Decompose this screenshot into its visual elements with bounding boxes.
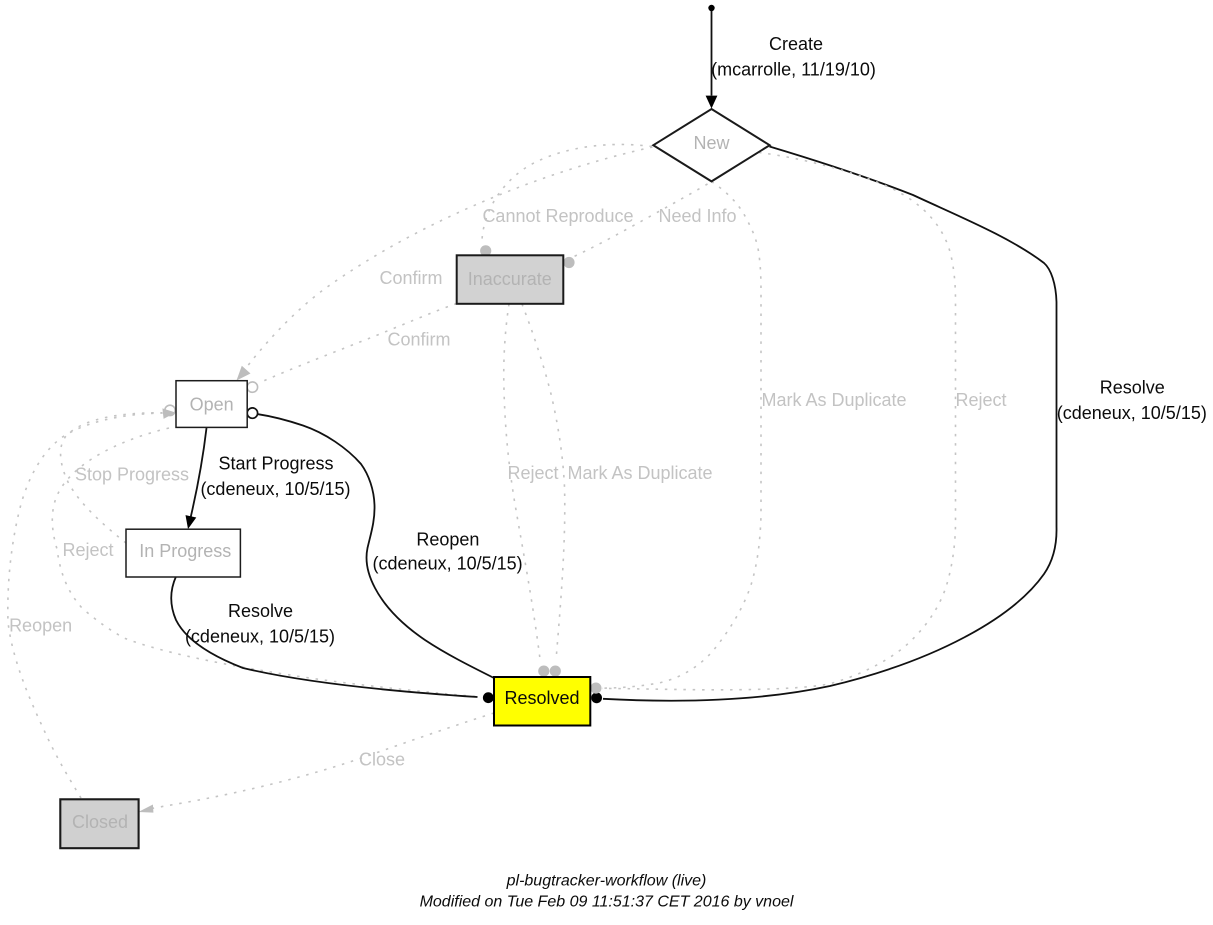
svg-text:Confirm: Confirm — [387, 330, 450, 350]
svg-text:(cdeneux, 10/5/15): (cdeneux, 10/5/15) — [1057, 403, 1207, 423]
svg-text:(cdeneux, 10/5/15): (cdeneux, 10/5/15) — [373, 553, 523, 573]
svg-text:pl-bugtracker-workflow (live): pl-bugtracker-workflow (live) — [506, 872, 707, 889]
svg-text:Reject: Reject — [955, 390, 1006, 410]
svg-text:Closed: Closed — [72, 812, 128, 832]
svg-text:(mcarrolle, 11/19/10): (mcarrolle, 11/19/10) — [711, 60, 876, 80]
svg-text:Resolve: Resolve — [1100, 377, 1165, 397]
svg-text:Reject: Reject — [62, 540, 113, 560]
svg-text:Close: Close — [359, 749, 405, 769]
svg-text:Resolved: Resolved — [504, 688, 579, 708]
svg-text:(cdeneux, 10/5/15): (cdeneux, 10/5/15) — [185, 627, 335, 647]
svg-text:Open: Open — [190, 394, 234, 414]
svg-text:Start Progress: Start Progress — [218, 454, 333, 474]
svg-text:Mark As Duplicate: Mark As Duplicate — [567, 463, 712, 483]
svg-text:Mark As Duplicate: Mark As Duplicate — [761, 390, 906, 410]
svg-text:(cdeneux, 10/5/15): (cdeneux, 10/5/15) — [200, 479, 350, 499]
svg-text:Cannot Reproduce: Cannot Reproduce — [482, 206, 633, 226]
svg-text:Reopen: Reopen — [416, 529, 479, 549]
svg-text:New: New — [693, 133, 730, 153]
svg-text:Reject: Reject — [507, 463, 558, 483]
svg-text:Resolve: Resolve — [228, 601, 293, 621]
svg-text:Confirm: Confirm — [379, 268, 442, 288]
svg-text:Create: Create — [769, 34, 823, 54]
svg-text:Need Info: Need Info — [658, 206, 736, 226]
svg-text:Modified on Tue Feb 09 11:51:3: Modified on Tue Feb 09 11:51:37 CET 2016… — [420, 893, 794, 910]
svg-text:Stop Progress: Stop Progress — [75, 465, 189, 485]
svg-text:Inaccurate: Inaccurate — [468, 269, 552, 289]
svg-text:In Progress: In Progress — [139, 541, 231, 561]
svg-text:Reopen: Reopen — [9, 615, 72, 635]
